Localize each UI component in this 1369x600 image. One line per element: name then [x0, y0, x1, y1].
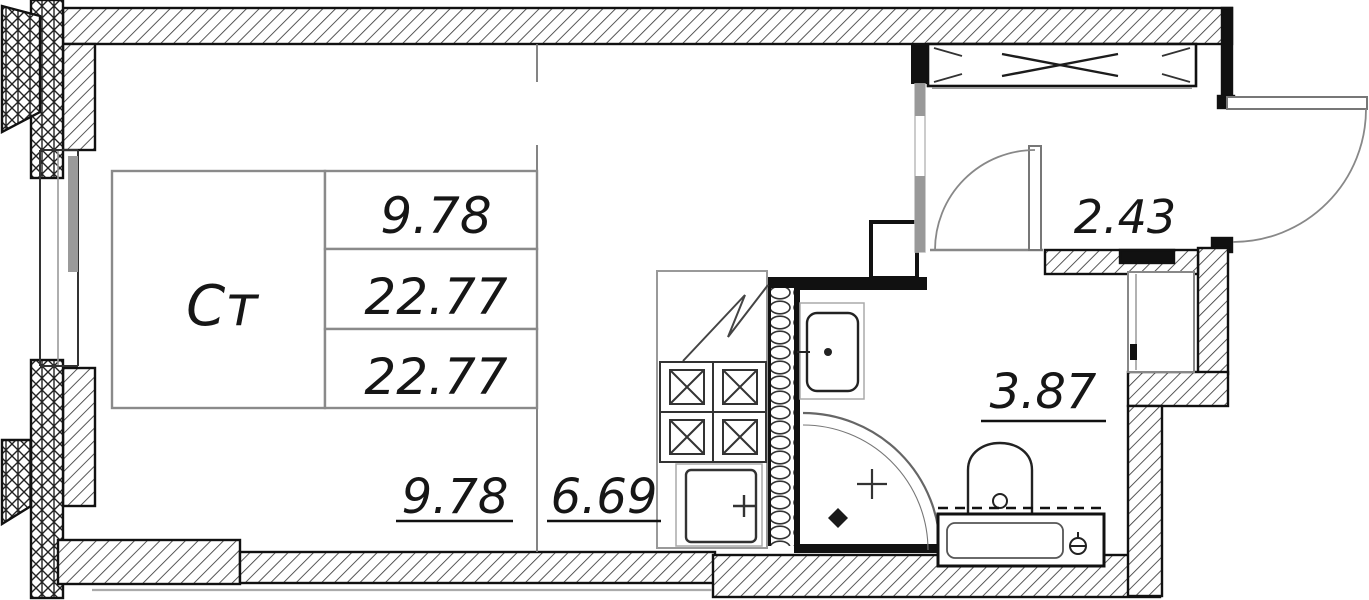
- kitchen-sink-icon: [676, 464, 762, 546]
- vent-block: [1120, 250, 1174, 263]
- entrance-door-leaf: [1227, 97, 1367, 109]
- partition-east-face: [794, 288, 800, 546]
- entrance-door-swing: [1233, 109, 1366, 242]
- area-total-value: 22.77: [364, 268, 507, 326]
- hall-area: 2.43: [1074, 190, 1176, 244]
- wall-post: [911, 44, 927, 84]
- pillar: [871, 222, 917, 278]
- wall-top: [63, 8, 1232, 44]
- partition-insulation: [771, 288, 794, 546]
- wall-shower-south: [794, 544, 942, 553]
- partition-hall-lower: [915, 176, 925, 252]
- area-total-reduced-value: 22.77: [364, 348, 507, 406]
- entrance-door: [1227, 97, 1367, 242]
- zone-kitchen-area: 6.69: [551, 469, 658, 525]
- bathtub-icon: [938, 508, 1104, 566]
- wall-right-mid: [1198, 248, 1228, 374]
- shower-drain: [828, 508, 848, 528]
- left-window: [40, 150, 78, 366]
- window-sill: [68, 156, 78, 272]
- burner: [670, 420, 704, 454]
- bathroom-door-swing: [935, 150, 1035, 250]
- closet: [928, 44, 1196, 88]
- kitchen-unit: [657, 271, 768, 548]
- washbasin-icon: [797, 303, 864, 399]
- bathroom-door: [930, 146, 1043, 250]
- wall-left-upper: [63, 44, 95, 150]
- corner-shower-icon: [803, 413, 940, 550]
- partition-hall-upper: [915, 84, 925, 116]
- zone-living-area: 9.78: [402, 469, 509, 525]
- unit-type-label: Ст: [186, 274, 259, 339]
- wall-right-upper: [1222, 8, 1232, 104]
- wall-right-lower: [1128, 406, 1162, 596]
- wall-bottom-mid: [240, 552, 715, 583]
- burner: [723, 420, 757, 454]
- wall-left-lower: [63, 368, 95, 506]
- floor-plan: Ст 9.78 22.77 22.77 9.78 6.69 2.43 3.87: [0, 0, 1369, 600]
- bathroom-door-leaf: [1029, 146, 1041, 250]
- toilet-icon: [968, 443, 1032, 516]
- area-living-value: 9.78: [380, 187, 491, 245]
- burner: [723, 370, 757, 404]
- pilaster-bottom-left: [2, 440, 31, 524]
- interior-walls: [766, 44, 942, 553]
- floor-plan-drawing: Ст 9.78 22.77 22.77 9.78 6.69 2.43 3.87: [0, 0, 1369, 600]
- stove-4-burner-icon: [660, 362, 766, 462]
- plumbing-shaft: [1128, 272, 1194, 372]
- bathroom-area: 3.87: [990, 364, 1097, 420]
- burner: [670, 370, 704, 404]
- wall-bottom-thick: [58, 540, 240, 584]
- wall-right-step: [1128, 372, 1228, 406]
- pilaster-top-left: [2, 6, 40, 132]
